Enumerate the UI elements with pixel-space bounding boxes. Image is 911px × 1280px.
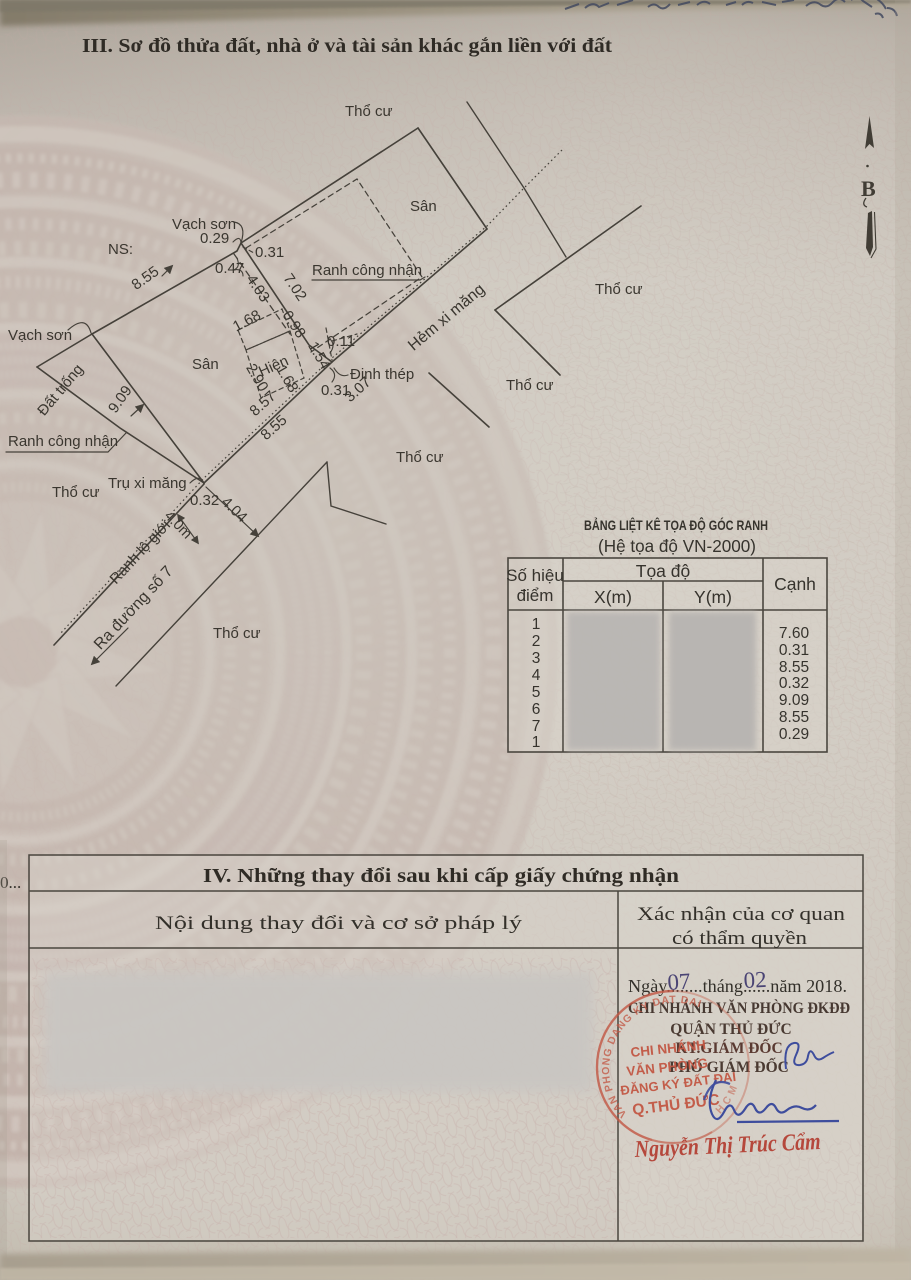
svg-text:Thổ cư: Thổ cư <box>506 377 554 394</box>
svg-text:IV. Những thay đổi sau khi cấp: IV. Những thay đổi sau khi cấp giấy chứn… <box>203 865 679 887</box>
svg-text:0.11: 0.11 <box>327 333 355 350</box>
svg-text:6: 6 <box>532 701 541 718</box>
svg-text:Vạch sơn: Vạch sơn <box>8 327 72 344</box>
svg-text:điểm: điểm <box>517 586 554 605</box>
svg-text:7.60: 7.60 <box>779 625 810 642</box>
svg-text:Tọa độ: Tọa độ <box>636 561 690 581</box>
svg-text:Trụ xi măng: Trụ xi măng <box>108 475 187 492</box>
svg-text:7: 7 <box>532 718 541 735</box>
svg-text:0.31: 0.31 <box>779 642 809 659</box>
svg-text:Xác nhận của cơ quan: Xác nhận của cơ quan <box>637 904 846 925</box>
svg-text:Thổ cư: Thổ cư <box>213 625 261 642</box>
svg-text:3: 3 <box>532 650 541 667</box>
svg-text:0.29: 0.29 <box>200 230 229 247</box>
svg-text:9.09: 9.09 <box>779 692 809 709</box>
svg-text:Sân: Sân <box>410 198 437 215</box>
svg-text:Số hiệu: Số hiệu <box>506 566 564 585</box>
svg-text:Y(m): Y(m) <box>694 587 732 607</box>
svg-text:Cạnh: Cạnh <box>774 574 816 594</box>
svg-text:0.47: 0.47 <box>215 260 244 277</box>
svg-text:2: 2 <box>532 633 541 650</box>
svg-text:B: B <box>861 176 876 201</box>
svg-text:Sân: Sân <box>192 356 219 373</box>
svg-text:Thổ cư: Thổ cư <box>396 449 444 466</box>
svg-text:QUẬN THỦ ĐỨC: QUẬN THỦ ĐỨC <box>670 1021 791 1038</box>
svg-text:8.55: 8.55 <box>779 659 809 676</box>
svg-text:Thổ cư: Thổ cư <box>345 103 393 120</box>
svg-text:Thổ cư: Thổ cư <box>52 484 100 501</box>
svg-text:0.32: 0.32 <box>190 492 219 509</box>
svg-text:0.31: 0.31 <box>255 244 284 261</box>
svg-text:Ranh công nhận: Ranh công nhận <box>312 262 422 279</box>
svg-text:NS:: NS: <box>108 241 133 258</box>
svg-text:Ranh công nhận: Ranh công nhận <box>8 433 118 450</box>
svg-text:5: 5 <box>532 684 541 701</box>
svg-text:X(m): X(m) <box>594 587 632 607</box>
svg-text:III. Sơ đồ thửa đất, nhà ở và: III. Sơ đồ thửa đất, nhà ở và tài sản kh… <box>82 35 612 57</box>
svg-text:Nội dung thay đổi và cơ sở phá: Nội dung thay đổi và cơ sở pháp lý <box>155 913 523 934</box>
svg-text:0.32: 0.32 <box>779 675 809 692</box>
svg-text:(Hệ tọa độ VN-2000): (Hệ tọa độ VN-2000) <box>598 536 756 556</box>
svg-text:BẢNG LIỆT KÊ TỌA ĐỘ GÓC RANH: BẢNG LIỆT KÊ TỌA ĐỘ GÓC RANH <box>584 516 768 533</box>
svg-text:02: 02 <box>743 967 767 993</box>
svg-text:4: 4 <box>532 667 541 684</box>
svg-text:Thổ cư: Thổ cư <box>595 281 643 298</box>
svg-text:1: 1 <box>532 734 541 751</box>
svg-text:có thẩm quyền: có thẩm quyền <box>672 928 808 949</box>
svg-text:1: 1 <box>532 616 541 633</box>
svg-text:0.29: 0.29 <box>779 726 809 743</box>
svg-text:8.55: 8.55 <box>779 709 809 726</box>
